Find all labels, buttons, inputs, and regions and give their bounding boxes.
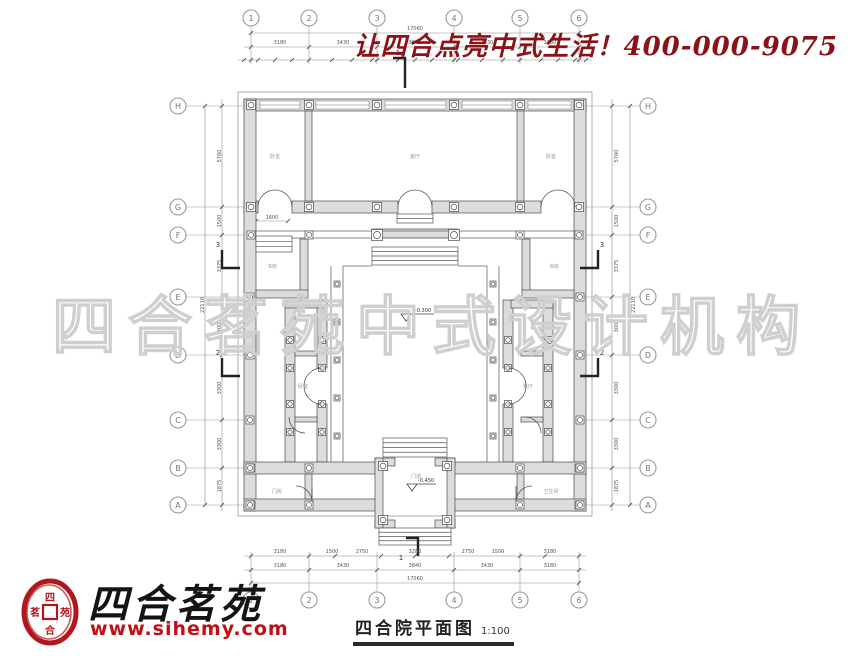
dim-left: 1875 bbox=[217, 480, 223, 493]
axis-left: G bbox=[175, 203, 181, 212]
axis-right: F bbox=[646, 231, 651, 240]
axis-right: G bbox=[645, 203, 651, 212]
dim-left: 3300 bbox=[217, 382, 223, 395]
dim-left: 3000 bbox=[217, 320, 223, 333]
axis-left: D bbox=[175, 351, 181, 360]
dim-top-major: 3430 bbox=[337, 40, 350, 46]
axis-top: 2 bbox=[306, 14, 311, 23]
dim-right: 3300 bbox=[614, 382, 620, 395]
room-label: 门房 bbox=[272, 488, 282, 495]
drawing-caption: 四合院平面图1:100 bbox=[353, 614, 514, 646]
room-label: 餐厅 bbox=[523, 383, 533, 390]
dim-right: 5760 bbox=[614, 150, 620, 163]
seal-char: 茗 bbox=[30, 606, 40, 619]
slogan-banner: 让四合点亮中式生活！400-000-9075 bbox=[354, 26, 839, 63]
axis-left: B bbox=[175, 464, 181, 473]
dim-right: 3000 bbox=[614, 320, 620, 333]
dim-right: 1875 bbox=[614, 480, 620, 493]
dim-left: 3375 bbox=[217, 260, 223, 273]
room-label: 卫生间 bbox=[543, 488, 558, 495]
caption-title: 四合院平面图 bbox=[355, 619, 475, 639]
elevation-value: -0.300 bbox=[415, 308, 431, 314]
dim-bottom-detail: 3180 bbox=[274, 549, 287, 555]
section-label: 1 bbox=[399, 554, 403, 562]
axis-top: 6 bbox=[576, 14, 581, 23]
dim-left: 3300 bbox=[217, 438, 223, 451]
section-label: 3 bbox=[600, 241, 604, 249]
seal-char: 合 bbox=[44, 624, 56, 637]
axis-right: D bbox=[645, 351, 651, 360]
axis-bottom: 2 bbox=[306, 596, 311, 605]
axis-bottom: 3 bbox=[374, 596, 379, 605]
axis-bottom: 5 bbox=[517, 596, 522, 605]
room-label: 卧室 bbox=[298, 383, 308, 390]
floorplan-drawing: 1 1 3 3 2 2 -0.300 -0.450 卧室 客厅 卧室 书房 书房… bbox=[0, 0, 850, 660]
dim-right: 3375 bbox=[614, 260, 620, 273]
dim-bottom-major: 3180 bbox=[274, 563, 287, 569]
section-label: 3 bbox=[216, 241, 220, 249]
room-label: 卧室 bbox=[270, 153, 280, 160]
logo-url: www.sihemy.com bbox=[90, 618, 289, 640]
axis-top: 4 bbox=[451, 14, 456, 23]
dim-inner-terrace: 1600 bbox=[266, 215, 279, 221]
dim-right: 3300 bbox=[614, 438, 620, 451]
company-logo: 四 茗 苑 合 四合茗苑 www.sihemy.com bbox=[16, 570, 276, 655]
axis-right: H bbox=[645, 102, 651, 111]
dim-bottom-detail: 1500 bbox=[326, 549, 339, 555]
axis-top: 3 bbox=[374, 14, 379, 23]
dim-right: 1500 bbox=[614, 215, 620, 228]
dim-right-total: 22110 bbox=[631, 297, 637, 313]
axis-bottom: 4 bbox=[451, 596, 456, 605]
dim-bottom-detail: 3280 bbox=[409, 549, 422, 555]
dim-top-major: 3180 bbox=[274, 40, 287, 46]
dim-bottom-detail: 3180 bbox=[544, 549, 557, 555]
seal-char: 苑 bbox=[59, 606, 70, 619]
dim-bottom-detail: 2750 bbox=[356, 549, 369, 555]
axis-left: H bbox=[175, 102, 181, 111]
section-label: 2 bbox=[600, 349, 604, 357]
room-label: 书房 bbox=[549, 263, 559, 270]
axis-left: E bbox=[175, 293, 180, 302]
axis-top: 1 bbox=[248, 14, 253, 23]
axis-right: E bbox=[645, 293, 650, 302]
room-label: 卧室 bbox=[546, 153, 556, 160]
dim-left: 1500 bbox=[217, 215, 223, 228]
axis-right: A bbox=[645, 501, 651, 510]
caption-scale: 1:100 bbox=[481, 626, 510, 637]
axis-right: C bbox=[645, 416, 651, 425]
dim-bottom-major: 3180 bbox=[544, 563, 557, 569]
seal-char: 四 bbox=[45, 592, 55, 604]
axis-left: C bbox=[175, 416, 181, 425]
dim-bottom-detail: 1500 bbox=[492, 549, 505, 555]
room-label: 门道 bbox=[411, 473, 421, 480]
axis-left: F bbox=[176, 231, 181, 240]
room-label: 客厅 bbox=[410, 153, 420, 160]
axis-bottom: 6 bbox=[576, 596, 581, 605]
room-label: 书房 bbox=[267, 263, 277, 270]
dim-bottom-detail: 2750 bbox=[462, 549, 475, 555]
dim-bottom-major: 3430 bbox=[337, 563, 350, 569]
axis-right: B bbox=[645, 464, 651, 473]
seal-icon: 四 茗 苑 合 bbox=[18, 574, 82, 650]
section-label: 2 bbox=[216, 349, 220, 357]
axis-top: 5 bbox=[517, 14, 522, 23]
elevation-markers bbox=[401, 314, 436, 491]
dim-left-total: 22110 bbox=[200, 297, 206, 313]
dim-bottom-total: 17060 bbox=[407, 576, 423, 582]
dim-bottom-major: 3840 bbox=[409, 563, 422, 569]
axis-left: A bbox=[175, 501, 181, 510]
dim-bottom-major: 3430 bbox=[481, 563, 494, 569]
dim-left: 5760 bbox=[217, 150, 223, 163]
